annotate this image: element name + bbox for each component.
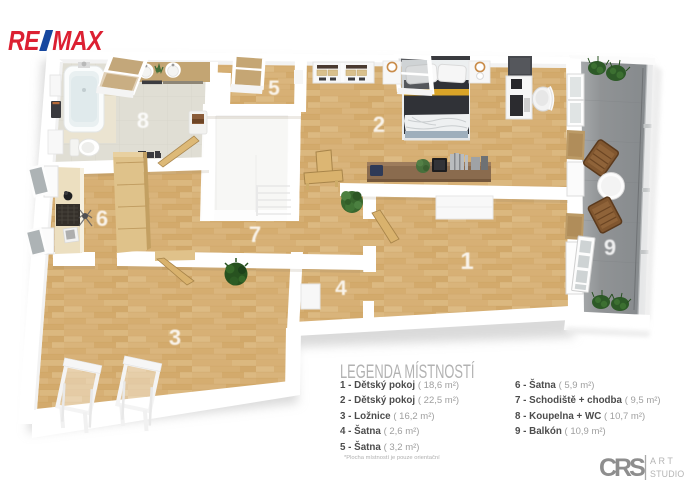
svg-text:5: 5 bbox=[268, 77, 280, 100]
svg-text:1: 1 bbox=[460, 248, 473, 275]
svg-text:8: 8 bbox=[137, 108, 149, 133]
svg-text:ART: ART bbox=[650, 456, 675, 466]
svg-text:STUDIO: STUDIO bbox=[650, 469, 684, 479]
svg-text:3: 3 bbox=[169, 325, 181, 350]
svg-text:CRS: CRS bbox=[599, 454, 645, 482]
svg-text:2: 2 bbox=[373, 112, 385, 137]
svg-text:4: 4 bbox=[335, 277, 347, 300]
svg-text:7: 7 bbox=[249, 222, 261, 247]
svg-text:6: 6 bbox=[96, 206, 108, 231]
svg-text:9: 9 bbox=[604, 235, 616, 260]
